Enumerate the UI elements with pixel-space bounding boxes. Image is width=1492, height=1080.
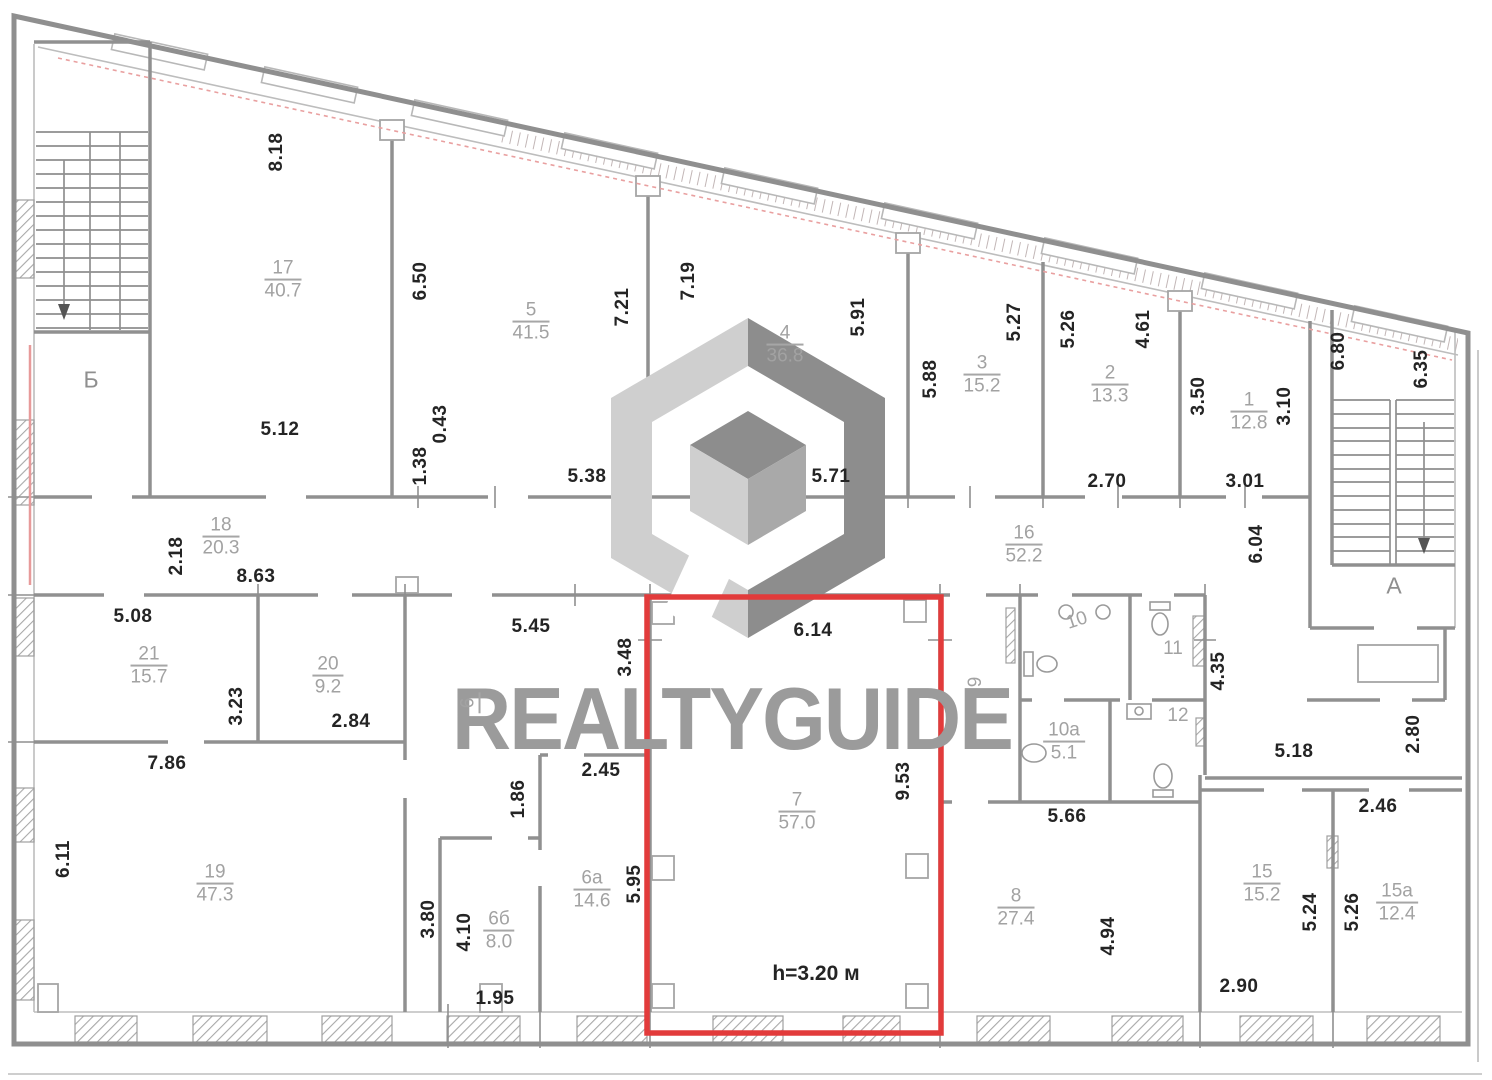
room-area: 57.0: [779, 813, 816, 834]
dim-label: 3.10: [1274, 387, 1296, 426]
room-label-16: 1652.2: [1006, 524, 1043, 567]
room-area: 20.3: [203, 538, 240, 559]
room-label-8: 827.4: [998, 887, 1035, 930]
dim-label: 2.18: [166, 537, 188, 576]
room-area: 5.1: [1043, 743, 1085, 764]
room-area: 12.4: [1376, 904, 1418, 925]
dim-label: 1.38: [410, 447, 432, 486]
room-label-2: 213.3: [1092, 364, 1129, 407]
dim-label: 3.80: [418, 900, 440, 939]
room-number: 21: [131, 645, 168, 667]
dim-label: 6.35: [1411, 350, 1433, 389]
room-label-12: 12: [1167, 706, 1188, 726]
room-label-6a: 6а14.6: [574, 869, 611, 912]
room-label-4: 436.8: [767, 324, 804, 367]
room-number: 3: [964, 354, 1001, 376]
room-number: 4: [767, 324, 804, 346]
dim-label: 3.23: [226, 687, 248, 726]
room-area: 14.6: [574, 891, 611, 912]
dim-label: 6.04: [1246, 525, 1268, 564]
dim-label: 2.46: [1359, 796, 1398, 818]
labels-layer: 1740.7 541.5 436.8 315.2 213.3 112.8 182…: [0, 0, 1492, 1080]
dim-label: 4.61: [1133, 310, 1155, 349]
room-number: 15а: [1376, 882, 1418, 904]
dim-label: 7.21: [612, 288, 634, 327]
dim-label: 5.71: [812, 466, 851, 488]
room-label-18: 1820.3: [203, 516, 240, 559]
room-number: 16: [1006, 524, 1043, 546]
room-area: 9.2: [312, 677, 343, 698]
room-label-10: 10: [1064, 608, 1090, 633]
room-area: 27.4: [998, 909, 1035, 930]
dim-label: 5.38: [568, 466, 607, 488]
room-label-15a: 15а12.4: [1376, 882, 1418, 925]
room-number: 19: [197, 863, 234, 885]
dim-label: 5.24: [1300, 893, 1322, 932]
dim-label: 3.50: [1188, 377, 1210, 416]
dim-label: 7.86: [148, 753, 187, 775]
ceiling-height-note: h=3.20 м: [772, 962, 859, 986]
room-label-19: 1947.3: [197, 863, 234, 906]
dim-label: 5.66: [1048, 806, 1087, 828]
room-label-5: 541.5: [513, 301, 550, 344]
dim-label: 8.63: [237, 566, 276, 588]
dim-label: 2.80: [1403, 715, 1425, 754]
dim-label: 2.90: [1220, 976, 1259, 998]
dim-label: 5.26: [1342, 893, 1364, 932]
room-area: 47.3: [197, 885, 234, 906]
dim-label: 2.45: [582, 760, 621, 782]
dim-label: 5.88: [920, 360, 942, 399]
room-label-11: 11: [1163, 639, 1183, 659]
room-number: 8: [998, 887, 1035, 909]
dim-label: 4.35: [1208, 652, 1230, 691]
stairwell-label-right: А: [1386, 573, 1401, 600]
room-area: 52.2: [1006, 546, 1043, 567]
dim-label: 6.80: [1328, 332, 1350, 371]
dim-label: 5.27: [1004, 303, 1026, 342]
room-label-15: 1515.2: [1244, 863, 1281, 906]
room-area: 15.2: [1244, 885, 1281, 906]
dim-label: 4.10: [454, 913, 476, 952]
dim-label: 7.19: [678, 262, 700, 301]
room-number: 10а: [1043, 721, 1085, 743]
room-area: [480, 693, 481, 714]
room-number: 2: [1092, 364, 1129, 386]
dim-label: 5.08: [114, 606, 153, 628]
room-area: 8.0: [483, 932, 514, 953]
dim-label: 3.01: [1226, 471, 1265, 493]
dim-label: 5.26: [1058, 310, 1080, 349]
stairwell-label-left: Б: [83, 367, 98, 394]
room-area: 36.8: [767, 346, 804, 367]
dim-label: 0.43: [430, 405, 452, 444]
room-label-1: 112.8: [1231, 391, 1268, 434]
room-number: 5: [513, 301, 550, 323]
room-area: 12.8: [1231, 413, 1268, 434]
room-number: 11: [1163, 639, 1183, 659]
room-label-9: 9: [966, 677, 986, 688]
room-number: 15: [1244, 863, 1281, 885]
room-number: 10: [1064, 608, 1090, 633]
dim-label: 5.91: [848, 298, 870, 337]
dim-label: 1.95: [476, 988, 515, 1010]
room-number: 17: [265, 259, 302, 281]
room-label-3: 315.2: [964, 354, 1001, 397]
room-label-6: 6: [459, 693, 482, 714]
room-number: 18: [203, 516, 240, 538]
room-area: 15.2: [964, 376, 1001, 397]
dim-label: 4.94: [1098, 917, 1120, 956]
room-number: 20: [312, 655, 343, 677]
dim-label: 5.45: [512, 616, 551, 638]
dim-label: 3.48: [615, 638, 637, 677]
room-number: 12: [1167, 706, 1188, 726]
dim-label: 1.86: [508, 780, 530, 819]
dim-label: 2.84: [332, 711, 371, 733]
room-number: 6а: [574, 869, 611, 891]
room-label-10a: 10а5.1: [1043, 721, 1085, 764]
room-number: 1: [1231, 391, 1268, 413]
dim-label: 6.11: [53, 840, 75, 878]
dim-label: 5.12: [261, 419, 300, 441]
dim-label: 5.18: [1275, 741, 1314, 763]
dim-label: 2.70: [1088, 471, 1127, 493]
room-number: 7: [779, 791, 816, 813]
room-label-21: 2115.7: [131, 645, 168, 688]
room-area: 40.7: [265, 281, 302, 302]
room-number: 6б: [483, 910, 514, 932]
dim-label: 5.95: [624, 865, 646, 904]
floorplan-scan: REALTYGUIDE 1740.7 541.5 436.8 315.2 213…: [0, 0, 1492, 1080]
room-area: 13.3: [1092, 386, 1129, 407]
dim-label: 6.14: [794, 620, 833, 642]
room-area: 41.5: [513, 323, 550, 344]
dim-label: 8.18: [266, 133, 288, 172]
dim-label: 6.50: [410, 262, 432, 301]
dim-label: 9.53: [893, 762, 915, 801]
room-number: 6: [459, 693, 481, 714]
room-label-20: 209.2: [312, 655, 343, 698]
room-number: 9: [966, 677, 986, 688]
room-label-7: 757.0: [779, 791, 816, 834]
room-label-17: 1740.7: [265, 259, 302, 302]
room-label-6b: 6б8.0: [483, 910, 514, 953]
room-area: 15.7: [131, 667, 168, 688]
